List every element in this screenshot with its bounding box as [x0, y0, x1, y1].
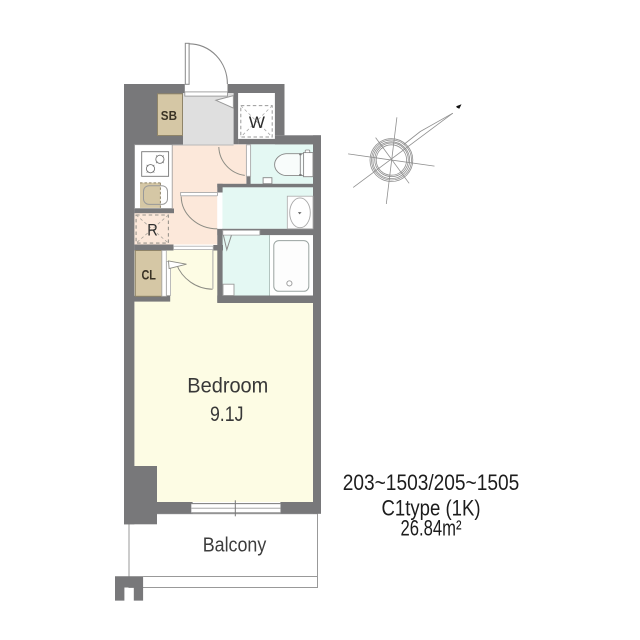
svg-text:203~1503/205~1505: 203~1503/205~1505 [343, 470, 520, 495]
svg-text:CL: CL [141, 268, 156, 283]
svg-text:W: W [249, 113, 265, 132]
svg-text:9.1J: 9.1J [210, 403, 244, 426]
svg-text:Balcony: Balcony [203, 534, 267, 556]
svg-text:R: R [147, 221, 158, 240]
svg-text:SB: SB [161, 108, 177, 123]
svg-text:Bedroom: Bedroom [187, 374, 268, 397]
svg-text:26.84m²: 26.84m² [401, 516, 462, 541]
